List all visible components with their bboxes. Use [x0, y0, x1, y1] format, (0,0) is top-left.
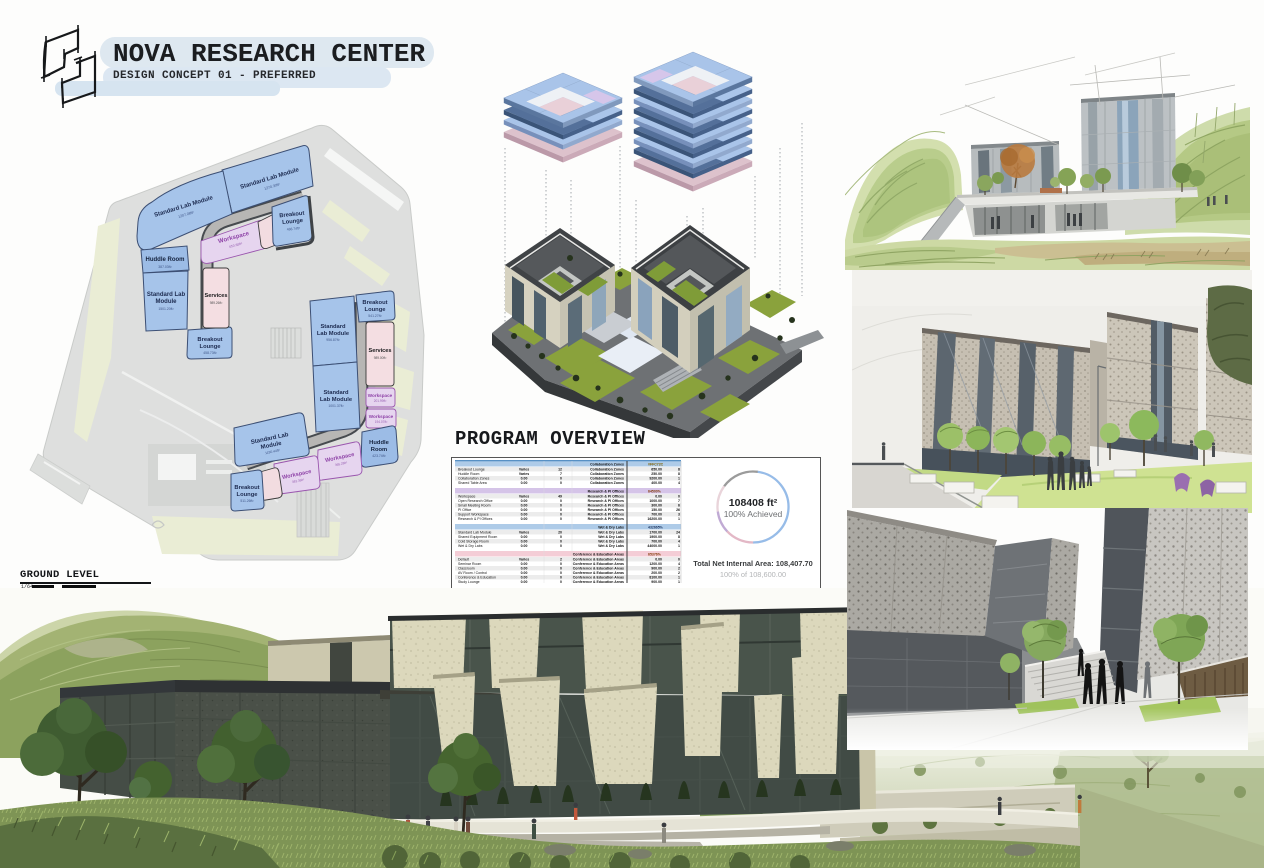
svg-text:423.74ft²: 423.74ft² — [372, 454, 386, 458]
svg-text:0: 0 — [678, 558, 680, 562]
svg-text:Breakout: Breakout — [234, 485, 259, 491]
svg-text:Huddle: Huddle — [369, 440, 389, 446]
svg-text:Huddle Room: Huddle Room — [458, 472, 479, 476]
svg-text:Shared Equipment Room: Shared Equipment Room — [458, 535, 497, 539]
svg-text:49: 49 — [558, 495, 562, 499]
svg-text:8100.00: 8100.00 — [649, 576, 662, 580]
svg-text:1501.20ft²: 1501.20ft² — [158, 307, 174, 311]
svg-text:4: 4 — [678, 481, 680, 485]
svg-text:Varies: Varies — [519, 495, 529, 499]
svg-text:Wet & Dry Labs: Wet & Dry Labs — [458, 544, 483, 548]
svg-text:Wet & Dry Labs: Wet & Dry Labs — [598, 540, 624, 544]
svg-text:1001.37ft²: 1001.37ft² — [328, 404, 344, 408]
svg-text:0: 0 — [560, 571, 562, 575]
svg-text:9200.00: 9200.00 — [649, 477, 662, 481]
svg-text:108408 ft²: 108408 ft² — [729, 497, 778, 509]
svg-text:511.26ft²: 511.26ft² — [240, 499, 254, 503]
svg-text:0: 0 — [560, 477, 562, 481]
svg-text:1: 1 — [678, 544, 680, 548]
svg-text:0: 0 — [560, 580, 562, 584]
svg-text:Wet & Dry Labs: Wet & Dry Labs — [598, 531, 624, 535]
svg-text:12: 12 — [558, 468, 562, 472]
svg-text:0: 0 — [560, 544, 562, 548]
svg-text:7: 7 — [678, 499, 680, 503]
svg-text:Research & PI Offices: Research & PI Offices — [588, 489, 624, 493]
svg-text:Lounge: Lounge — [237, 492, 259, 498]
svg-text:0: 0 — [560, 513, 562, 517]
svg-text:1700.00: 1700.00 — [649, 531, 662, 535]
svg-text:Conference & Education Areas: Conference & Education Areas — [573, 558, 624, 562]
svg-text:Breakout: Breakout — [362, 300, 387, 306]
svg-text:26: 26 — [676, 508, 680, 512]
svg-text:Workspace: Workspace — [369, 414, 394, 419]
svg-text:Standard: Standard — [323, 390, 349, 396]
svg-text:2: 2 — [678, 567, 680, 571]
svg-text:Research & PI Offices: Research & PI Offices — [588, 504, 624, 508]
svg-text:Research & PI Offices: Research & PI Offices — [588, 508, 624, 512]
svg-text:Standard Lab Module: Standard Lab Module — [458, 531, 492, 535]
svg-text:650.00: 650.00 — [651, 468, 662, 472]
svg-text:Research & PI Offices: Research & PI Offices — [588, 499, 624, 503]
svg-text:0.00: 0.00 — [521, 544, 528, 548]
svg-text:0.00: 0.00 — [521, 481, 528, 485]
svg-text:44000.00: 44000.00 — [647, 544, 662, 548]
svg-text:Wet & Dry Labs: Wet & Dry Labs — [598, 544, 624, 548]
svg-text:194.07ft²: 194.07ft² — [375, 420, 388, 424]
svg-text:Research & PI Offices: Research & PI Offices — [588, 517, 624, 521]
svg-text:Collaboration Zones: Collaboration Zones — [590, 477, 624, 481]
svg-text:0.00: 0.00 — [655, 495, 662, 499]
svg-text:Wet & Dry Labs: Wet & Dry Labs — [598, 525, 624, 529]
svg-text:Lab Module: Lab Module — [317, 331, 350, 337]
svg-text:0.00: 0.00 — [521, 477, 528, 481]
svg-text:900.00: 900.00 — [651, 567, 662, 571]
svg-text:150.00: 150.00 — [651, 508, 662, 512]
svg-text:0: 0 — [560, 504, 562, 508]
svg-text:0.00: 0.00 — [521, 517, 528, 521]
svg-text:Varies: Varies — [519, 558, 529, 562]
svg-text:100% Achieved: 100% Achieved — [724, 509, 783, 519]
svg-text:PI Office: PI Office — [458, 508, 471, 512]
svg-text:Lounge: Lounge — [365, 307, 387, 313]
svg-text:Conference & Education: Conference & Education — [458, 576, 496, 580]
svg-text:Standard: Standard — [320, 324, 346, 330]
svg-text:Services: Services — [204, 293, 227, 299]
svg-text:3: 3 — [678, 513, 680, 517]
svg-text:250.00: 250.00 — [651, 472, 662, 476]
svg-text:1: 1 — [678, 477, 680, 481]
svg-text:0.00: 0.00 — [521, 562, 528, 566]
svg-text:#FFC72C: #FFC72C — [648, 462, 664, 466]
svg-text:700.00: 700.00 — [651, 513, 662, 517]
svg-text:AV Room / Control: AV Room / Control — [458, 571, 487, 575]
svg-text:8: 8 — [678, 472, 680, 476]
svg-text:0: 0 — [560, 508, 562, 512]
svg-text:387.03ft²: 387.03ft² — [158, 265, 172, 269]
svg-text:0: 0 — [560, 517, 562, 521]
svg-text:Collaboration Zones: Collaboration Zones — [590, 468, 624, 472]
svg-text:Support Workspace: Support Workspace — [458, 513, 489, 517]
svg-text:0.00: 0.00 — [521, 508, 528, 512]
svg-text:Conference & Education Areas: Conference & Education Areas — [573, 571, 624, 575]
svg-text:Conference & Education Areas: Conference & Education Areas — [573, 562, 624, 566]
svg-text:Default: Default — [458, 558, 469, 562]
svg-text:0.00: 0.00 — [521, 540, 528, 544]
svg-text:0.00: 0.00 — [521, 567, 528, 571]
svg-text:4: 4 — [678, 540, 680, 544]
svg-text:Cold Storage Room: Cold Storage Room — [458, 540, 489, 544]
svg-text:0.00: 0.00 — [521, 499, 528, 503]
svg-text:Conference & Education Areas: Conference & Education Areas — [573, 552, 624, 556]
svg-text:Seminar Room: Seminar Room — [458, 562, 481, 566]
svg-text:900.00: 900.00 — [651, 580, 662, 584]
svg-text:1200.00: 1200.00 — [649, 562, 662, 566]
svg-text:Services: Services — [368, 348, 391, 354]
svg-text:Standard Lab: Standard Lab — [147, 292, 186, 298]
svg-text:200.00: 200.00 — [651, 571, 662, 575]
svg-text:Wet & Dry Labs: Wet & Dry Labs — [598, 535, 624, 539]
svg-text:700.00: 700.00 — [651, 540, 662, 544]
svg-text:Research & PI Offices: Research & PI Offices — [588, 513, 624, 517]
svg-text:Breakout Lounge: Breakout Lounge — [458, 468, 485, 472]
svg-text:Workspace: Workspace — [368, 393, 393, 398]
svg-text:Workspace: Workspace — [458, 495, 475, 499]
svg-text:Conference & Education Areas: Conference & Education Areas — [573, 567, 624, 571]
svg-text:16200.00: 16200.00 — [647, 517, 662, 521]
svg-text:Varies: Varies — [519, 468, 529, 472]
svg-text:1900.00: 1900.00 — [649, 535, 662, 539]
svg-text:1: 1 — [678, 580, 680, 584]
svg-text:0.00: 0.00 — [655, 558, 662, 562]
svg-text:Module: Module — [156, 299, 178, 305]
svg-text:Open Research Office: Open Research Office — [458, 499, 493, 503]
svg-text:0: 0 — [560, 567, 562, 571]
svg-text:400.00: 400.00 — [651, 481, 662, 485]
svg-text:2: 2 — [560, 558, 562, 562]
svg-text:0.00: 0.00 — [521, 571, 528, 575]
svg-text:0.00: 0.00 — [521, 580, 528, 584]
svg-text:0.00: 0.00 — [521, 535, 528, 539]
svg-text:8: 8 — [678, 468, 680, 472]
svg-text:0: 0 — [678, 495, 680, 499]
svg-text:0.00: 0.00 — [521, 513, 528, 517]
svg-text:24: 24 — [676, 531, 680, 535]
svg-text:0.00: 0.00 — [521, 504, 528, 508]
svg-text:Total Net Internal Area: 108,4: Total Net Internal Area: 108,407.70 — [693, 559, 813, 568]
svg-text:Conference & Education Areas: Conference & Education Areas — [573, 580, 624, 584]
svg-text:Varies: Varies — [519, 531, 529, 535]
svg-text:7: 7 — [560, 472, 562, 476]
svg-text:989.00ft²: 989.00ft² — [374, 356, 387, 360]
svg-text:8: 8 — [678, 535, 680, 539]
svg-text:989.26ft²: 989.26ft² — [210, 301, 223, 305]
svg-text:6: 6 — [678, 504, 680, 508]
svg-text:956.87ft²: 956.87ft² — [326, 338, 340, 342]
svg-text:0: 0 — [560, 576, 562, 580]
svg-text:Collaboration Zones: Collaboration Zones — [590, 481, 624, 485]
svg-text:Conference & Education Areas: Conference & Education Areas — [573, 576, 624, 580]
svg-text:458.73ft²: 458.73ft² — [203, 351, 217, 355]
svg-text:Varies: Varies — [519, 472, 529, 476]
svg-text:432665%: 432665% — [648, 525, 664, 529]
svg-text:Breakout: Breakout — [197, 337, 222, 343]
svg-text:201.99ft²: 201.99ft² — [374, 399, 387, 403]
svg-text:2: 2 — [678, 571, 680, 575]
svg-text:0: 0 — [560, 499, 562, 503]
svg-text:541.27ft²: 541.27ft² — [368, 314, 382, 318]
svg-text:Collaboration Zones: Collaboration Zones — [590, 462, 624, 466]
svg-text:Lab Module: Lab Module — [320, 397, 353, 403]
svg-text:Research & PI Offices: Research & PI Offices — [458, 517, 493, 521]
svg-text:Study Lounge: Study Lounge — [458, 580, 480, 584]
svg-text:1: 1 — [678, 576, 680, 580]
svg-text:4: 4 — [678, 562, 680, 566]
svg-text:Classroom: Classroom — [458, 567, 475, 571]
svg-text:0.00: 0.00 — [521, 576, 528, 580]
svg-text:Lounge: Lounge — [200, 344, 222, 350]
svg-text:65376%: 65376% — [648, 552, 662, 556]
svg-text:Shared Table Area: Shared Table Area — [458, 481, 487, 485]
svg-text:100% of 108,600.00: 100% of 108,600.00 — [720, 570, 786, 579]
svg-text:Collaboration Zones: Collaboration Zones — [590, 472, 624, 476]
svg-text:64500%: 64500% — [648, 489, 662, 493]
svg-text:Research & PI Offices: Research & PI Offices — [588, 495, 624, 499]
svg-text:300.00: 300.00 — [651, 504, 662, 508]
svg-text:Collaboration Zones: Collaboration Zones — [458, 477, 490, 481]
svg-text:0: 0 — [560, 535, 562, 539]
svg-text:1000.00: 1000.00 — [649, 499, 662, 503]
svg-text:0: 0 — [560, 481, 562, 485]
svg-text:Huddle Room: Huddle Room — [146, 257, 185, 263]
svg-text:20: 20 — [558, 531, 562, 535]
svg-text:0: 0 — [560, 540, 562, 544]
svg-text:1: 1 — [678, 517, 680, 521]
svg-text:0: 0 — [560, 562, 562, 566]
svg-text:Room: Room — [371, 447, 387, 453]
svg-text:Small Meeting Room: Small Meeting Room — [458, 504, 491, 508]
